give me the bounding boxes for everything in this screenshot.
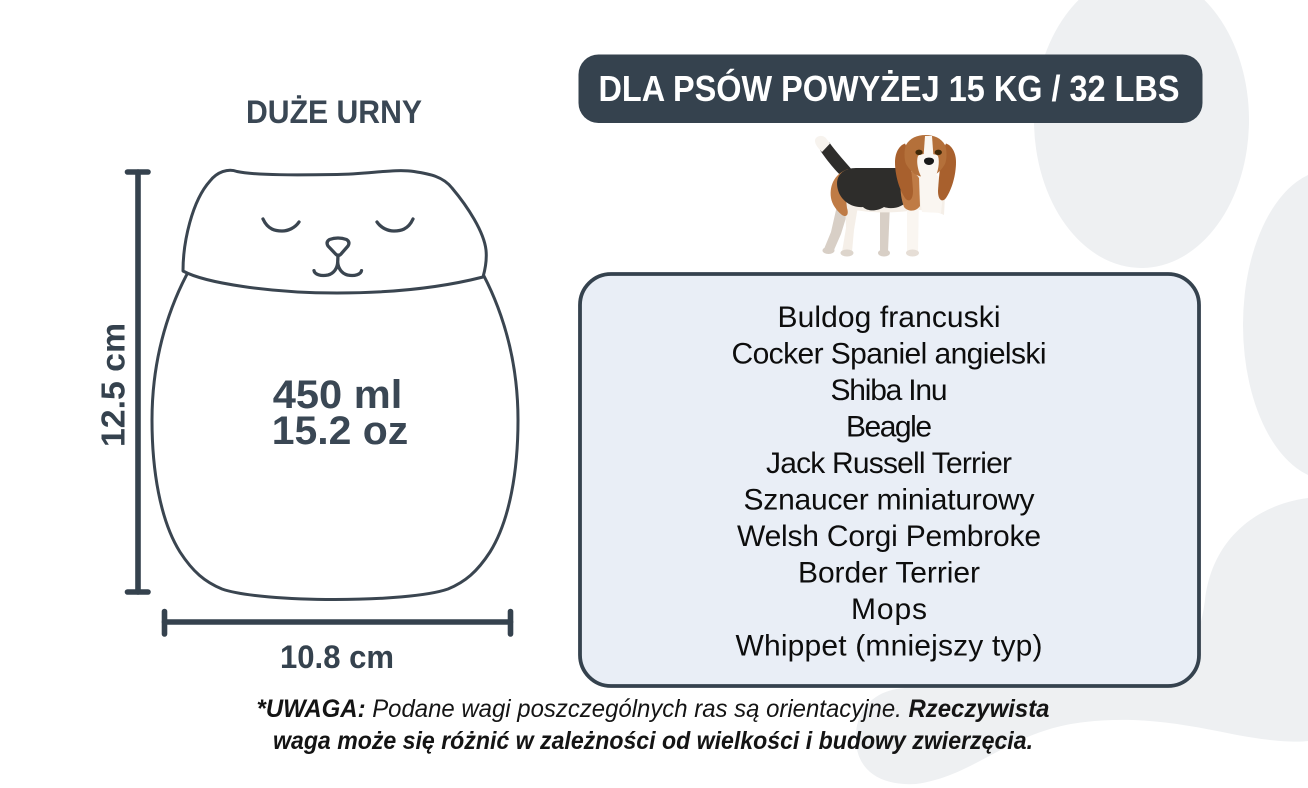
svg-text:*UWAGA: Podane wagi poszczegól: *UWAGA: Podane wagi poszczególnych ras s… xyxy=(257,695,1050,723)
svg-text:DUŻE URNY: DUŻE URNY xyxy=(246,94,422,130)
svg-text:Whippet (mniejszy typ): Whippet (mniejszy typ) xyxy=(736,630,1043,663)
svg-text:Mops: Mops xyxy=(851,593,927,626)
svg-text:12.5 cm: 12.5 cm xyxy=(95,323,132,447)
svg-text:10.8 cm: 10.8 cm xyxy=(280,639,394,675)
svg-text:waga może się różnić w zależno: waga może się różnić w zależności od wie… xyxy=(273,727,1033,755)
svg-text:Cocker Spaniel angielski: Cocker Spaniel angielski xyxy=(732,338,1047,371)
svg-text:Welsh Corgi Pembroke: Welsh Corgi Pembroke xyxy=(737,520,1041,553)
svg-text:15.2 oz: 15.2 oz xyxy=(272,409,409,453)
svg-text:Shiba Inu: Shiba Inu xyxy=(831,374,948,407)
svg-text:Buldog francuski: Buldog francuski xyxy=(778,301,1001,334)
svg-text:Border Terrier: Border Terrier xyxy=(798,557,980,590)
svg-text:Beagle: Beagle xyxy=(846,411,932,444)
svg-text:Jack Russell Terrier: Jack Russell Terrier xyxy=(766,447,1012,480)
svg-text:DLA PSÓW POWYŻEJ 15 KG / 32 LB: DLA PSÓW POWYŻEJ 15 KG / 32 LBS xyxy=(599,67,1180,109)
svg-text:Sznaucer miniaturowy: Sznaucer miniaturowy xyxy=(744,484,1035,517)
